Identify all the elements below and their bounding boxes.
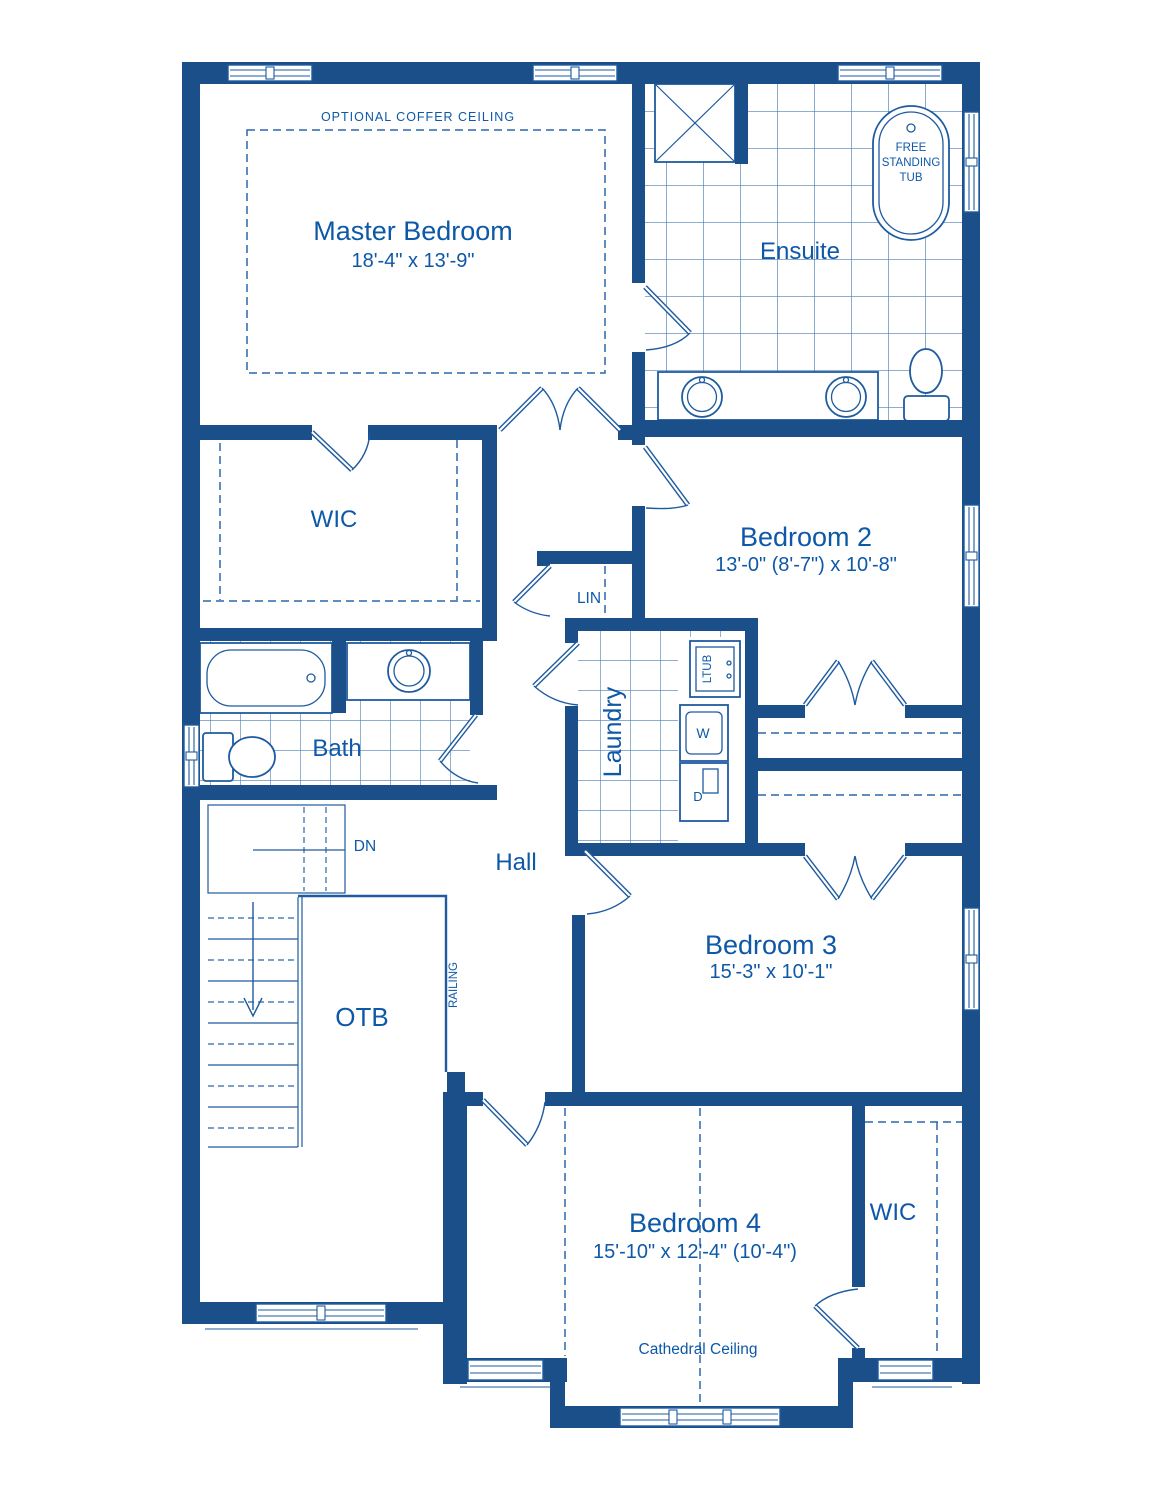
window-bay-triple (620, 1408, 780, 1426)
door-closet-bedroom3-double (805, 856, 905, 899)
bedroom4-label: Bedroom 4 (629, 1208, 761, 1238)
window-bedroom3 (964, 908, 979, 1010)
window-master-right (533, 65, 617, 81)
wic-bedroom4-shelf-lines (865, 1122, 962, 1352)
door-master-double (500, 388, 620, 430)
bedroom3-dimensions: 15'-3" x 10'-1" (709, 961, 832, 983)
window-master-left (228, 65, 312, 81)
stair-down-arrow (244, 902, 262, 1016)
door-bedroom2 (645, 447, 688, 509)
master-bedroom-label: Master Bedroom (313, 216, 513, 246)
dryer-label: D (693, 789, 702, 804)
window-ensuite-top (838, 65, 942, 81)
hall-label: Hall (495, 849, 536, 876)
door-bedroom3 (585, 851, 630, 914)
linen-label: LIN (577, 590, 601, 607)
railing-label: RAILING (448, 962, 460, 1008)
wic-bedroom4-label: WIC (870, 1199, 917, 1226)
dryer-icon (680, 763, 728, 821)
door-laundry (534, 643, 578, 705)
bedroom4-dimensions: 15'-10" x 12'-4" (10'-4") (593, 1241, 797, 1263)
laundry-tub-icon (690, 641, 740, 697)
stairs-down-label: DN (354, 838, 376, 855)
shower-icon (655, 84, 735, 162)
stair-landing (208, 805, 345, 893)
door-closet-bedroom2-double (805, 661, 905, 705)
tub-note-line2: STANDING (882, 157, 941, 169)
washer-label: W (696, 725, 710, 741)
railing-line (298, 896, 446, 1072)
bedroom3-label: Bedroom 3 (705, 930, 837, 960)
door-bedroom4 (483, 1100, 545, 1145)
bath-vanity (347, 643, 470, 700)
tiled-floors (200, 84, 962, 843)
tub-note-line1: FREE (896, 142, 927, 154)
laundry-tub-label: LTUB (702, 654, 714, 683)
window-ensuite-right (964, 112, 979, 212)
ensuite-label: Ensuite (760, 238, 840, 265)
door-linen (514, 566, 550, 616)
floor-plan-page: OPTIONAL COFFER CEILING Master Bedroom 1… (0, 0, 1159, 1500)
bedroom2-dimensions: 13'-0" (8'-7") x 10'-8" (715, 554, 897, 576)
bath-tub-icon (200, 643, 332, 713)
tub-note-line3: TUB (900, 172, 923, 184)
cathedral-ceiling-note: Cathedral Ceiling (639, 1341, 758, 1358)
otb-label: OTB (335, 1002, 388, 1032)
laundry-label: Laundry (599, 686, 627, 777)
window-bath (184, 725, 199, 787)
door-wic-bedroom4 (815, 1289, 858, 1348)
coffer-ceiling-note: OPTIONAL COFFER CEILING (321, 110, 515, 124)
bath-label: Bath (312, 735, 361, 762)
staircase (208, 805, 446, 1147)
ensuite-vanity (658, 372, 878, 420)
door-wic-master (312, 432, 370, 470)
bath-toilet-icon (203, 733, 275, 781)
bedroom2-label: Bedroom 2 (740, 522, 872, 552)
window-bedroom2 (964, 505, 979, 607)
window-bedroom4-left (460, 1360, 552, 1387)
wic-master-label: WIC (311, 506, 358, 533)
floor-plan: OPTIONAL COFFER CEILING Master Bedroom 1… (0, 0, 1159, 1500)
master-bedroom-dimensions: 18'-4" x 13'-9" (351, 250, 474, 272)
